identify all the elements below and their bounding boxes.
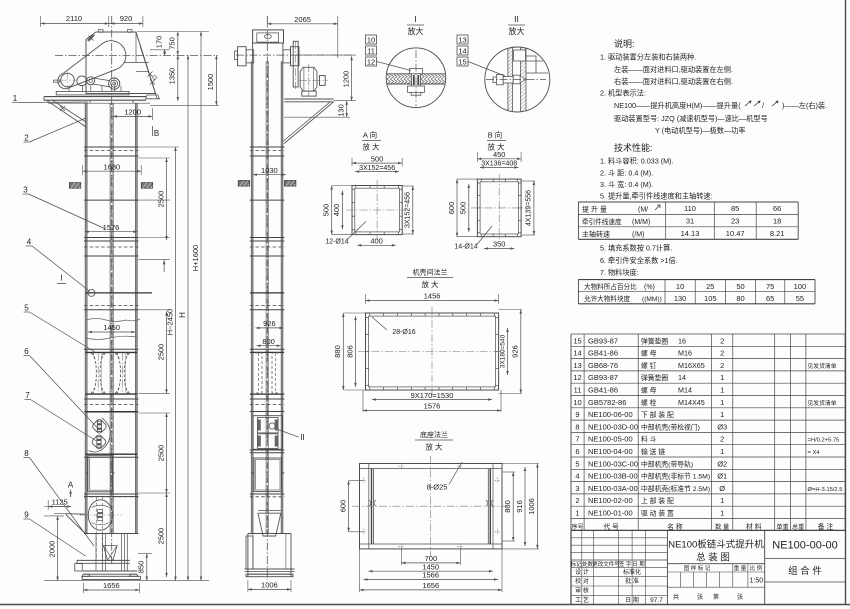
- svg-text:工 艺: 工 艺: [575, 596, 589, 604]
- svg-text:75: 75: [766, 282, 774, 291]
- svg-text:2: 2: [720, 361, 724, 370]
- svg-text:放 大: 放 大: [425, 442, 443, 452]
- svg-text:第: 第: [713, 593, 719, 601]
- svg-text:放大: 放大: [509, 26, 525, 36]
- svg-text:15: 15: [573, 336, 581, 345]
- svg-text:II: II: [300, 433, 304, 442]
- svg-text:底座法兰: 底座法兰: [420, 430, 448, 439]
- svg-text:1566: 1566: [422, 571, 439, 580]
- svg-text:1500: 1500: [206, 74, 215, 91]
- svg-text:Y (电动机型号)—极数—功率: Y (电动机型号)—极数—功率: [655, 126, 746, 135]
- svg-text:8.21: 8.21: [770, 229, 785, 238]
- svg-text:(M/M): (M/M): [632, 219, 650, 226]
- svg-text:1576: 1576: [424, 402, 441, 411]
- svg-text:放 大: 放 大: [362, 142, 380, 152]
- svg-text:28-Ø16: 28-Ø16: [392, 329, 415, 336]
- svg-text:11: 11: [574, 386, 582, 395]
- svg-text:110: 110: [684, 204, 696, 213]
- svg-text:1006: 1006: [261, 581, 278, 590]
- svg-text:共: 共: [673, 593, 679, 601]
- svg-text:NE100-03D-00: NE100-03D-00: [588, 422, 638, 431]
- svg-text:10: 10: [676, 282, 684, 291]
- svg-text:Ø2: Ø2: [717, 459, 727, 468]
- svg-text:NE100-06-00: NE100-06-00: [588, 410, 633, 419]
- svg-text:放 大: 放 大: [421, 279, 439, 289]
- svg-text:7: 7: [575, 435, 579, 444]
- svg-text:1200: 1200: [124, 108, 141, 117]
- svg-text:500: 500: [459, 202, 468, 215]
- svg-text:14: 14: [573, 349, 581, 358]
- svg-text:9X170=1530: 9X170=1530: [411, 391, 454, 400]
- svg-text:800: 800: [262, 337, 275, 346]
- svg-text:M16: M16: [678, 349, 692, 358]
- svg-text:9: 9: [24, 511, 29, 520]
- svg-text:1: 1: [720, 373, 724, 382]
- svg-text:大物料所占百分比: 大物料所占百分比: [584, 282, 637, 291]
- svg-text:4: 4: [27, 238, 32, 247]
- svg-text:1030: 1030: [261, 166, 278, 175]
- svg-text:H−2450: H−2450: [165, 309, 174, 335]
- svg-text:(%): (%): [644, 284, 655, 291]
- svg-text:2500: 2500: [156, 528, 165, 545]
- svg-text:I: I: [414, 14, 416, 24]
- svg-text:750: 750: [168, 37, 177, 50]
- svg-text:12: 12: [573, 373, 581, 382]
- svg-text:M16X65: M16X65: [678, 361, 705, 370]
- svg-text:1: 1: [720, 509, 724, 518]
- svg-text:组 合 件: 组 合 件: [788, 565, 822, 577]
- svg-text:弹簧垫圈: 弹簧垫圈: [641, 336, 668, 345]
- svg-text:926: 926: [263, 319, 276, 328]
- svg-text:允许大物料块度: 允许大物料块度: [584, 294, 631, 303]
- svg-text:GB5782-86: GB5782-86: [588, 398, 626, 407]
- svg-text:校 对: 校 对: [575, 577, 589, 585]
- svg-text:NE100-03C-00: NE100-03C-00: [588, 459, 638, 468]
- svg-text:代 号: 代 号: [603, 522, 619, 531]
- svg-text:5. 提升量,牵引件线速度和主轴转速:: 5. 提升量,牵引件线速度和主轴转速:: [600, 192, 713, 201]
- svg-text:2500: 2500: [156, 344, 165, 361]
- svg-text:7. 物料块度:: 7. 物料块度:: [600, 268, 639, 277]
- svg-text:中部机壳(标准节 2.5M): 中部机壳(标准节 2.5M): [641, 484, 710, 493]
- svg-text:3X136=408: 3X136=408: [481, 161, 517, 168]
- svg-text:螺 栓: 螺 栓: [641, 398, 657, 407]
- svg-text:6: 6: [575, 447, 579, 456]
- svg-text:输 送 链: 输 送 链: [641, 447, 665, 456]
- svg-text:55: 55: [796, 294, 804, 303]
- svg-text:B 向: B 向: [488, 130, 503, 140]
- svg-text:左装——面对进料口,驱动装置在左侧.: 左装——面对进料口,驱动装置在左侧.: [614, 65, 733, 74]
- svg-text:NE100板链斗式提升机: NE100板链斗式提升机: [668, 539, 764, 551]
- svg-text:806: 806: [345, 345, 354, 358]
- svg-text:机壳间法兰: 机壳间法兰: [413, 268, 448, 277]
- svg-text:130: 130: [337, 104, 346, 117]
- svg-text:7: 7: [25, 391, 30, 400]
- svg-text:1: 1: [720, 410, 724, 419]
- svg-text:4: 4: [575, 472, 579, 481]
- svg-text:数 量: 数 量: [715, 523, 729, 531]
- svg-text:1: 1: [720, 398, 724, 407]
- svg-text:单重: 单重: [776, 523, 788, 531]
- svg-text:600: 600: [447, 202, 456, 215]
- svg-text:2: 2: [720, 349, 724, 358]
- svg-text:1: 1: [575, 509, 579, 518]
- svg-text:3. 斗 宽: 0.4 (M).: 3. 斗 宽: 0.4 (M).: [600, 180, 653, 189]
- svg-text:材 料: 材 料: [746, 522, 762, 531]
- svg-text:标准化: 标准化: [623, 568, 641, 576]
- svg-text:更改文件号: 更改文件号: [592, 560, 620, 568]
- svg-text:10.47: 10.47: [726, 229, 745, 238]
- svg-text:2000: 2000: [47, 541, 56, 558]
- svg-text:NE100-00-00: NE100-00-00: [772, 540, 837, 552]
- svg-text:Ø3: Ø3: [717, 422, 727, 431]
- svg-text:600: 600: [338, 500, 347, 513]
- svg-text:NE100-01-00: NE100-01-00: [588, 509, 633, 518]
- svg-text:5: 5: [575, 459, 579, 468]
- svg-text:H: H: [178, 312, 187, 318]
- svg-text:I: I: [60, 274, 62, 283]
- svg-text:提 升 量: 提 升 量: [582, 205, 607, 214]
- svg-text:400: 400: [370, 237, 383, 246]
- svg-text:(M/: (M/: [638, 207, 648, 214]
- svg-text:10: 10: [573, 398, 581, 407]
- svg-text:800: 800: [503, 500, 512, 513]
- svg-text:130: 130: [674, 294, 687, 303]
- svg-text:80: 80: [736, 294, 744, 303]
- svg-text:1656: 1656: [422, 581, 439, 590]
- svg-text:2: 2: [575, 496, 579, 505]
- svg-text:1200: 1200: [341, 71, 350, 88]
- svg-text:螺 母: 螺 母: [641, 349, 657, 358]
- svg-text:NE100-03B-00: NE100-03B-00: [588, 472, 638, 481]
- svg-text:Ø1: Ø1: [717, 472, 727, 481]
- svg-text:9: 9: [575, 410, 579, 419]
- svg-text:中部机壳(带检视门): 中部机壳(带检视门): [641, 422, 700, 431]
- svg-text:技术性能:: 技术性能:: [614, 142, 653, 153]
- svg-text:97.7: 97.7: [650, 597, 663, 604]
- svg-text:100: 100: [794, 282, 807, 291]
- svg-text:11: 11: [367, 46, 375, 55]
- svg-text:13: 13: [573, 361, 581, 370]
- svg-text:序号: 序号: [571, 523, 583, 531]
- svg-text:500: 500: [371, 154, 384, 163]
- svg-text:驱 动 装 置: 驱 动 装 置: [641, 509, 674, 518]
- svg-text:)——左(右)装.: )——左(右)装.: [782, 101, 827, 110]
- svg-text:16: 16: [678, 336, 686, 345]
- svg-text:A 向: A 向: [363, 130, 377, 140]
- svg-text:螺 母: 螺 母: [641, 386, 657, 395]
- svg-text:8: 8: [24, 449, 29, 458]
- svg-text:中部机壳(带导轨): 中部机壳(带导轨): [641, 459, 693, 468]
- svg-text:B: B: [154, 129, 159, 138]
- svg-text:张: 张: [737, 593, 743, 601]
- svg-text:5: 5: [24, 304, 29, 313]
- svg-text:25: 25: [706, 282, 714, 291]
- svg-text:右装——面对进料口,驱动装置在右侧.: 右装——面对进料口,驱动装置在右侧.: [614, 77, 733, 86]
- svg-text:450: 450: [493, 150, 506, 159]
- svg-text:1. 料斗容积: 0.033 (M).: 1. 料斗容积: 0.033 (M).: [600, 157, 674, 166]
- svg-text:6. 牵引件安全系数 >1倍.: 6. 牵引件安全系数 >1倍.: [600, 256, 678, 265]
- svg-text:15: 15: [458, 57, 466, 66]
- svg-text:1: 1: [720, 386, 724, 395]
- svg-text:NE100-03A-00: NE100-03A-00: [588, 484, 638, 493]
- svg-text:65: 65: [766, 294, 774, 303]
- svg-text:14: 14: [458, 46, 466, 55]
- svg-text:日 期: 日 期: [632, 561, 645, 568]
- svg-text:5. 填充系数按 0.7计算.: 5. 填充系数按 0.7计算.: [600, 244, 672, 253]
- svg-text:3: 3: [23, 186, 28, 195]
- svg-text:3X152=456: 3X152=456: [405, 192, 412, 228]
- svg-text:下 部 装 配: 下 部 装 配: [641, 410, 674, 419]
- svg-text:1: 1: [720, 496, 724, 505]
- svg-text:M14: M14: [678, 386, 692, 395]
- svg-text:31: 31: [686, 217, 694, 226]
- svg-text:2. 机型表示法:: 2. 机型表示法:: [600, 89, 646, 98]
- svg-text:标记: 标记: [570, 560, 582, 568]
- svg-text:比 例: 比 例: [750, 564, 763, 572]
- svg-text:批 准: 批 准: [625, 577, 639, 585]
- svg-text:23: 23: [731, 217, 739, 226]
- svg-text:GB68-76: GB68-76: [588, 361, 618, 370]
- svg-text:说明:: 说明:: [614, 38, 635, 49]
- svg-text:3X180=540: 3X180=540: [499, 334, 506, 368]
- svg-text:920: 920: [120, 14, 133, 23]
- svg-text:2: 2: [720, 435, 724, 444]
- svg-text:2110: 2110: [66, 14, 82, 23]
- svg-text:= X4: = X4: [808, 450, 821, 456]
- svg-text:10: 10: [367, 35, 375, 44]
- svg-text:H+1600: H+1600: [191, 245, 200, 271]
- svg-text:2500: 2500: [156, 191, 165, 208]
- svg-text:M14X45: M14X45: [678, 398, 705, 407]
- svg-text:日 期: 日 期: [625, 596, 639, 604]
- svg-text:1: 1: [13, 94, 18, 103]
- svg-text:916: 916: [515, 500, 524, 513]
- svg-text:重 量: 重 量: [734, 564, 747, 572]
- svg-text:张: 张: [697, 593, 703, 601]
- svg-text:850: 850: [137, 561, 146, 574]
- svg-text:GB93-87: GB93-87: [588, 336, 618, 345]
- svg-text:14: 14: [678, 373, 686, 382]
- svg-text:1. 驱动装置分左装和右装两种.: 1. 驱动装置分左装和右装两种.: [600, 53, 696, 62]
- svg-text:中部机壳(非标节 1.5M): 中部机壳(非标节 1.5M): [641, 472, 710, 481]
- svg-text:(/M): (/M): [632, 231, 644, 238]
- svg-text:设 计: 设 计: [575, 568, 589, 576]
- svg-text:签 字: 签 字: [619, 560, 632, 568]
- svg-text:弹簧垫圈: 弹簧垫圈: [641, 373, 668, 382]
- svg-text:1576: 1576: [103, 223, 120, 232]
- svg-text:2: 2: [720, 336, 724, 345]
- svg-text:18: 18: [773, 217, 781, 226]
- svg-text:2065: 2065: [294, 15, 311, 24]
- svg-text:总重: 总重: [792, 523, 804, 531]
- svg-text:2. 斗 距: 0.4 (M).: 2. 斗 距: 0.4 (M).: [600, 169, 653, 178]
- svg-text:/: /: [762, 101, 764, 110]
- svg-text:NE100-04-00: NE100-04-00: [588, 447, 633, 456]
- svg-text:8-Ø25: 8-Ø25: [427, 483, 448, 492]
- svg-text:GB41-86: GB41-86: [588, 386, 618, 395]
- svg-text:4X139=556: 4X139=556: [526, 190, 533, 226]
- svg-text:NE100-02-00: NE100-02-00: [588, 496, 633, 505]
- svg-text:1680: 1680: [104, 162, 121, 171]
- svg-text:备 注: 备 注: [818, 522, 834, 531]
- svg-text:500: 500: [322, 204, 331, 217]
- svg-text:NE100——提升机高度H(M)——提升量(: NE100——提升机高度H(M)——提升量(: [614, 101, 741, 110]
- svg-text:驱动装置型号: JZQ (减速机型号)—速比—机型号: 驱动装置型号: JZQ (减速机型号)—速比—机型号: [614, 114, 768, 123]
- svg-text:1: 1: [720, 447, 724, 456]
- svg-text:螺 钉: 螺 钉: [641, 361, 657, 370]
- svg-text:66: 66: [773, 204, 781, 213]
- svg-text:1450: 1450: [103, 323, 120, 332]
- svg-text:1350: 1350: [168, 68, 177, 85]
- svg-text:审 核: 审 核: [575, 587, 589, 595]
- svg-text:50: 50: [736, 282, 744, 291]
- svg-text:2500: 2500: [156, 445, 165, 462]
- svg-text:1006: 1006: [527, 498, 536, 515]
- svg-text:12-Ø14: 12-Ø14: [325, 239, 348, 246]
- svg-text:图 样 标 记: 图 样 标 记: [684, 564, 711, 572]
- svg-text:3: 3: [575, 484, 579, 493]
- svg-text:总 装 图: 总 装 图: [696, 552, 730, 564]
- svg-text:NE100-05-00: NE100-05-00: [588, 435, 633, 444]
- svg-text:170: 170: [155, 36, 164, 49]
- svg-text:350: 350: [493, 240, 506, 249]
- svg-text:3X152=456: 3X152=456: [359, 165, 395, 172]
- svg-text:1456: 1456: [424, 292, 441, 301]
- svg-text:926: 926: [511, 345, 520, 358]
- svg-text:名 称: 名 称: [667, 522, 683, 531]
- svg-text:A: A: [68, 481, 74, 490]
- svg-text:1:50: 1:50: [749, 578, 763, 585]
- svg-text:13: 13: [458, 35, 466, 44]
- svg-text:牵引件线速度: 牵引件线速度: [582, 217, 622, 226]
- svg-text:880: 880: [333, 345, 342, 358]
- svg-text:GB93-87: GB93-87: [588, 373, 618, 382]
- svg-text:见发货清单: 见发货清单: [808, 362, 837, 370]
- svg-text:85: 85: [731, 204, 739, 213]
- svg-text:料 斗: 料 斗: [641, 435, 657, 444]
- svg-text:6: 6: [24, 347, 29, 356]
- svg-text:8: 8: [575, 422, 579, 431]
- svg-text:14.13: 14.13: [681, 229, 700, 238]
- svg-text:400: 400: [332, 204, 341, 217]
- svg-text:主轴转速: 主轴转速: [582, 229, 610, 238]
- svg-text:Ø=H-3.15/2.5: Ø=H-3.15/2.5: [808, 487, 843, 493]
- svg-text:((MM)): ((MM)): [642, 296, 662, 303]
- svg-text:Ø: Ø: [719, 484, 725, 493]
- svg-text:II: II: [514, 14, 519, 24]
- svg-text:1656: 1656: [103, 581, 120, 590]
- svg-text:105: 105: [704, 294, 717, 303]
- svg-text:2: 2: [24, 134, 29, 143]
- svg-text:见发货清单: 见发货清单: [808, 399, 837, 407]
- svg-text:GB41-86: GB41-86: [588, 349, 618, 358]
- svg-text:14-Ø14: 14-Ø14: [454, 243, 477, 250]
- svg-text:上 部 装 配: 上 部 装 配: [641, 496, 674, 505]
- svg-text:放大: 放大: [408, 26, 424, 36]
- svg-text:=H/0.2+5.75: =H/0.2+5.75: [808, 438, 840, 444]
- svg-text:12: 12: [367, 57, 375, 66]
